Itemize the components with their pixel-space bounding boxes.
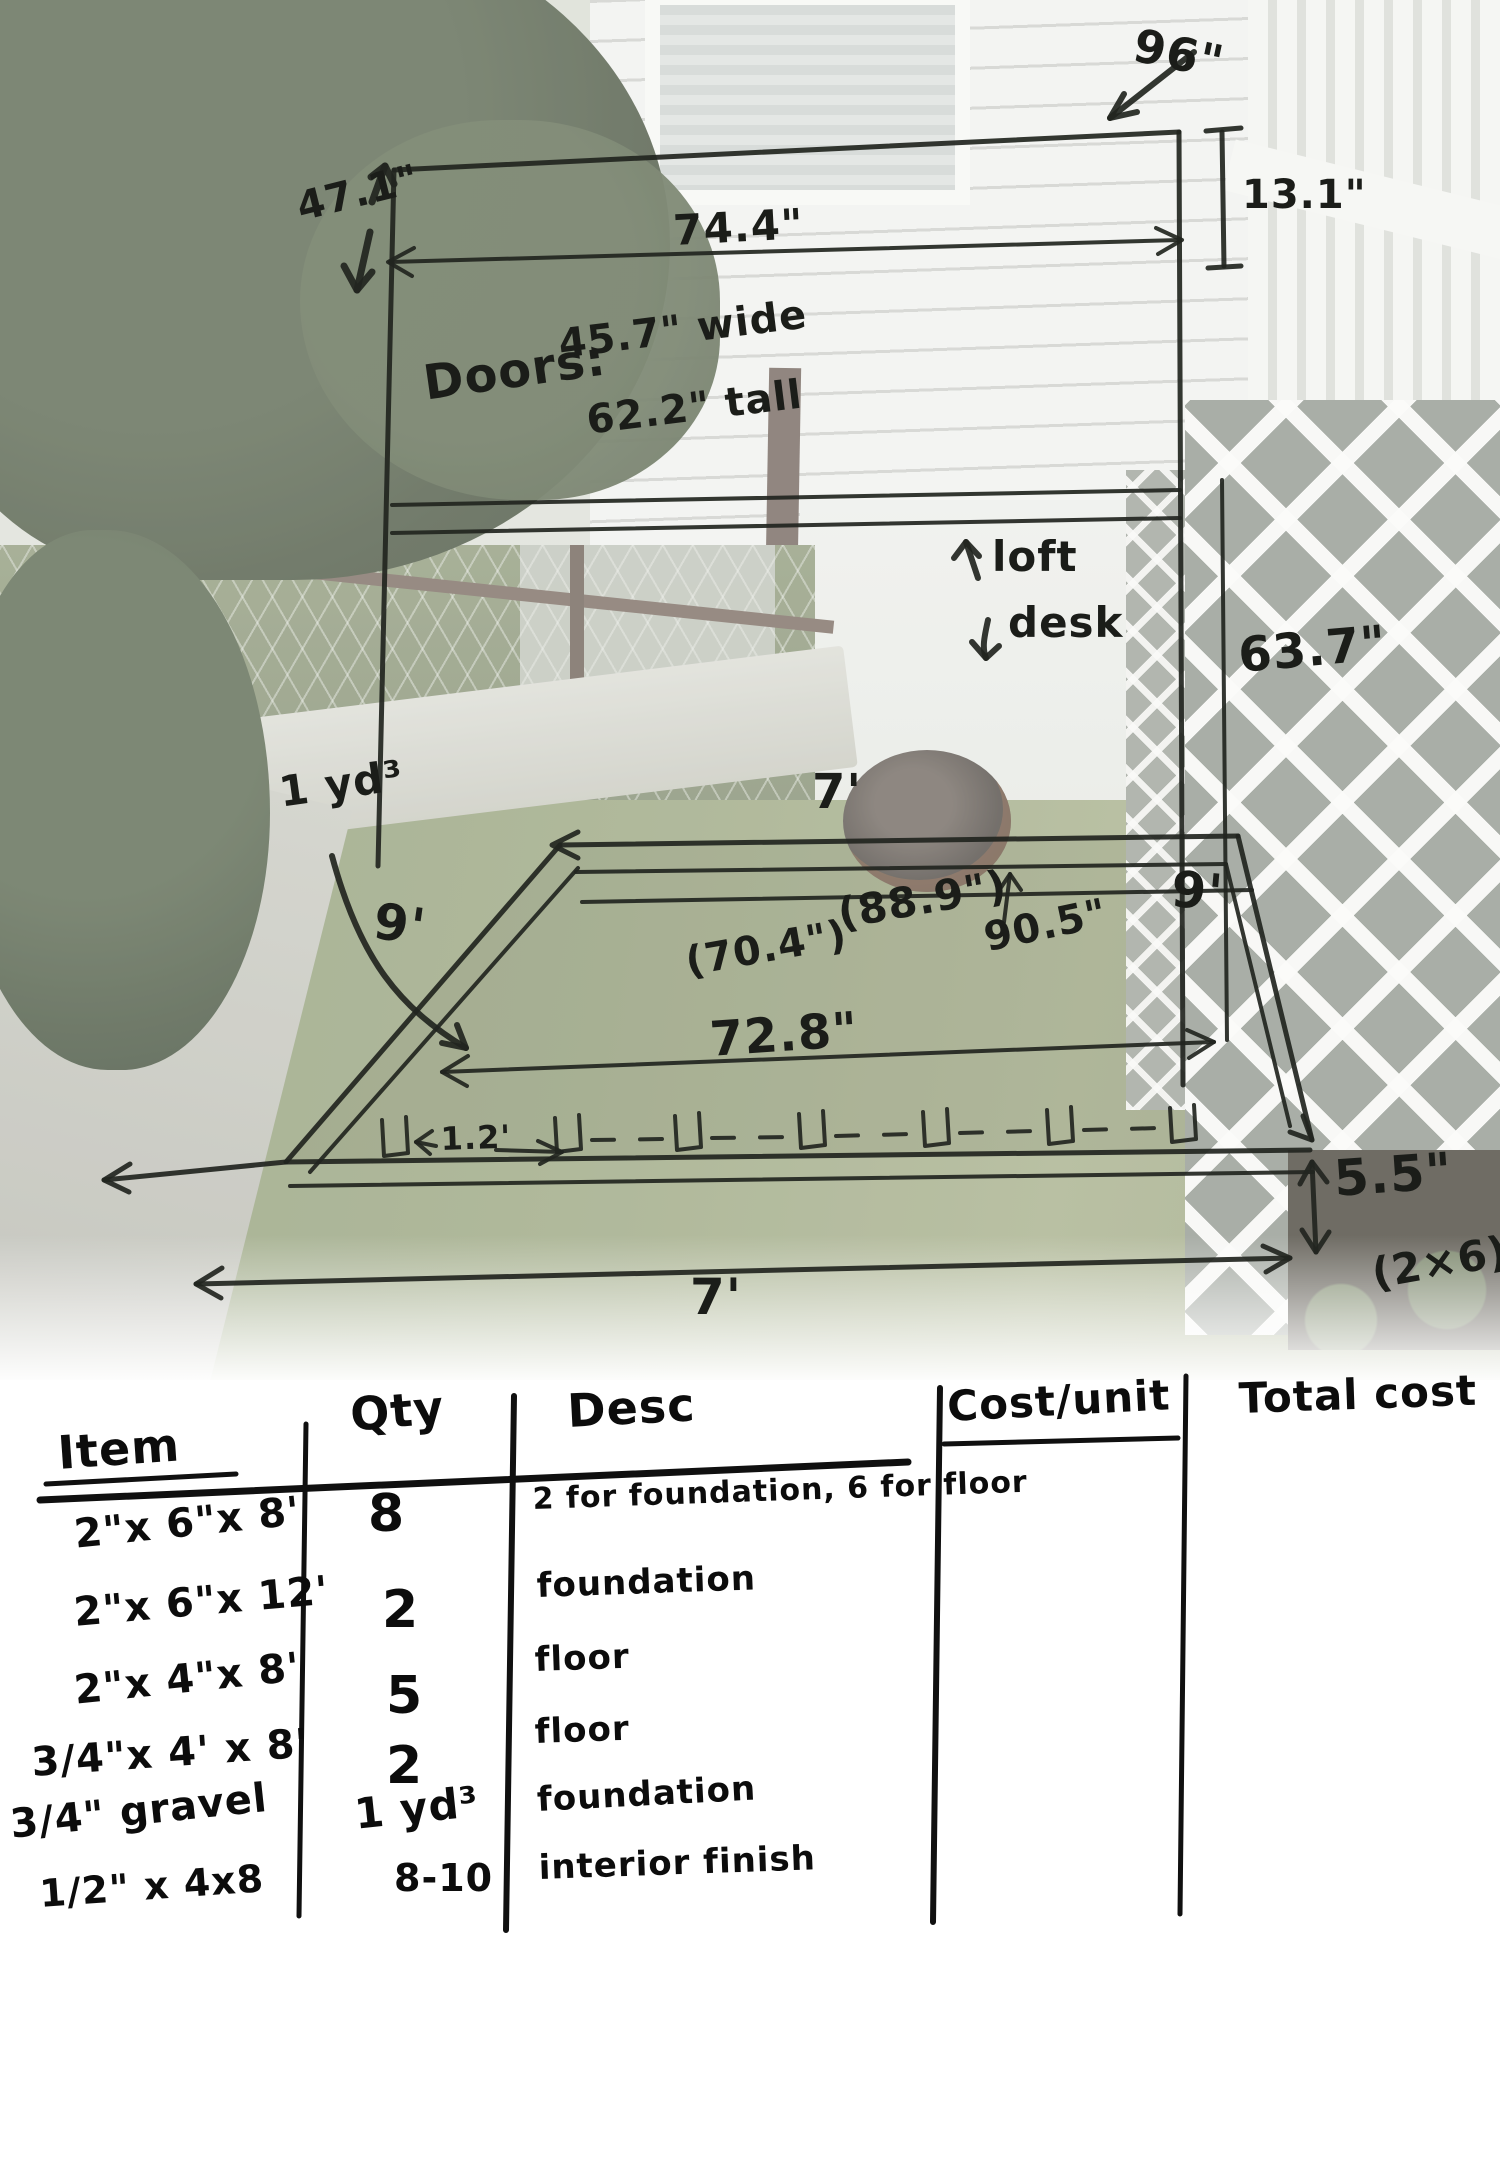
dim-label-front-width: 7' <box>690 1268 742 1326</box>
row-item: 2"x 4"x 8' <box>72 1644 302 1713</box>
row-desc: floor <box>534 1637 630 1680</box>
photo-fade-to-paper <box>0 1235 1500 1380</box>
dim-label-width-top: 74.4" <box>672 199 805 255</box>
col-header-desc: Desc <box>566 1377 697 1438</box>
row-desc: foundation <box>536 1558 757 1606</box>
col-header-cost-unit: Cost/unit <box>946 1370 1172 1431</box>
col-header-total-cost: Total cost <box>1238 1366 1478 1423</box>
annotated-plan-page: 47.1" 74.4" 96" 13.1" Doors: 45.7" wide … <box>0 0 1500 2159</box>
row-item: 3/4"x 4' x 8' <box>30 1721 310 1786</box>
dim-label-joist-offset: 1.2' <box>440 1118 512 1158</box>
row-desc: interior finish <box>538 1838 817 1888</box>
row-desc: foundation <box>536 1769 757 1820</box>
row-desc: 2 for foundation, 6 for floor <box>532 1465 1028 1517</box>
row-item: 2"x 6"x 12' <box>72 1568 331 1636</box>
row-item: 1/2" x 4x8 <box>38 1856 265 1916</box>
row-qty: 5 <box>386 1666 423 1726</box>
dim-label-board-height: 5.5" <box>1332 1142 1454 1208</box>
row-qty: 8-10 <box>394 1856 493 1900</box>
col-header-qty: Qty <box>348 1380 446 1442</box>
row-item: 2"x 6"x 8' <box>72 1488 302 1557</box>
row-qty: 1 yd³ <box>352 1777 481 1839</box>
row-qty: 2 <box>382 1580 419 1640</box>
dim-label-right-depth: 9' <box>1169 860 1226 922</box>
row-item: 3/4" gravel <box>8 1775 270 1848</box>
dim-label-back-width: 7' <box>812 764 862 820</box>
desk-label: desk <box>1008 598 1123 647</box>
loft-label: loft <box>992 532 1078 581</box>
row-desc: floor <box>534 1709 630 1752</box>
dim-label-inner-mid: 72.8" <box>708 1002 860 1068</box>
dim-label-left-depth: 9' <box>370 892 430 957</box>
dim-label-top-offset: 13.1" <box>1242 172 1367 218</box>
row-qty: 8 <box>368 1484 405 1544</box>
col-header-item: Item <box>56 1417 182 1479</box>
